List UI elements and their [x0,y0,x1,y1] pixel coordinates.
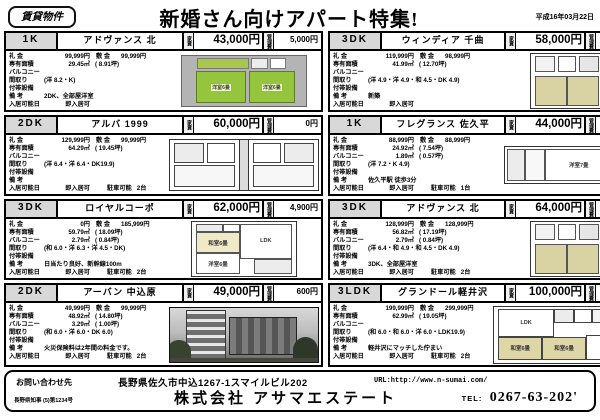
balcony-value [44,69,90,77]
room-area [253,165,314,187]
balcony-label: バルコニー [9,69,44,77]
layout-value: (洋 8.2・K) [44,77,75,85]
room-type-badge: 2DK [6,117,58,133]
fee-label: 管理費 [264,117,274,133]
listing-details: 礼 金49,999円敷 金99,999円 専有面積48.92㎡( 14.80坪)… [9,305,169,364]
key-money-value: 99,999円 [44,53,90,61]
listing-card: 3DK ウィンディア 千曲 家賃 58,000円 管理費 0円 礼 金119,9… [328,31,600,112]
fee-label: 管理費 [586,201,596,217]
area-value: 29.45㎡ [44,61,90,69]
property-name: アルバ 1999 [58,117,184,133]
room-type-badge: 3DK [6,201,58,217]
management-fee: 4,900円 [274,201,321,217]
room-type-badge: 1K [6,33,58,49]
deposit-value: 99,999円 [121,53,146,61]
property-name: グランドール軽井沢 [382,285,506,301]
building-facade [186,310,226,359]
bath-area [579,224,599,240]
flyer-date: 平成16年03月22日 [502,12,594,22]
listing-details: 礼 金119,999円敷 金98,999円 専有面積41.99㎡( 12.70坪… [333,53,493,109]
building-photo [169,307,319,363]
property-name: アーバン 中込原 [58,285,184,301]
room-area: 洋室6畳 [196,253,240,274]
toilet-area [574,309,592,322]
rental-badge: 賃貸物件 [8,6,76,28]
ldk-area: LDK [240,224,292,259]
room-area: 洋室6畳 [249,71,295,103]
tatami-room-area [535,76,567,106]
property-name: ロイヤルコーポ [58,201,184,217]
bath-area [579,56,599,72]
license-number: 長野県知事 (5)第1234号 [14,396,73,404]
listing-details: 礼 金99,999円敷 金99,999円 専有面積29.45㎡( 8.91坪) … [9,53,169,109]
listing-details: 礼 金88,999円敷 金88,999円 専有面積24.92㎡( 7.54坪) … [333,137,493,193]
inquiry-label: お問い合わせ先 [16,377,72,388]
room-area: 洋室6畳 [586,335,600,360]
tatami-room-area: 和室6畳 [196,232,240,253]
bath-area [251,58,267,69]
bath-area [554,309,574,322]
room-area [207,143,235,163]
bath-area [223,224,240,232]
area-tsubo: ( 8.91坪) [95,61,119,69]
hall-area [558,56,575,72]
room-type-badge: 3DK [330,33,382,49]
room-area [253,143,281,163]
toilet-area [270,58,286,69]
ldk-area: LDK [498,309,553,337]
hall-area [558,224,575,240]
fee-label: 管理費 [586,285,596,301]
kitchen-area [535,224,555,240]
rent-label: 家賃 [184,117,194,133]
listing-details: 礼 金128,999円敷 金128,999円 専有面積56.82㎡( 17.19… [333,221,493,277]
kitchen-area [197,58,249,69]
company-name: 株式会社 アサマエステート [174,387,397,408]
rent-amount: 49,000円 [194,285,264,301]
tatami-room-area [567,244,599,274]
property-name: フレグランス 佐久平 [382,117,506,133]
website-url: URL:http://www.n-sumai.com/ [374,377,487,385]
tel-value: 0267-63-202' [490,390,578,405]
rent-label: 家賃 [506,33,516,49]
management-fee: 12,000円 [596,285,600,301]
floorplan-image: LDK 和室6畳 和室6畳 洋室6畳 [493,306,600,364]
room-area: 洋室6畳 [196,71,247,103]
fee-label: 管理費 [264,285,274,301]
rent-amount: 64,000円 [516,201,586,217]
floorplan-image: 洋室7畳 [504,146,600,184]
flyer-header: 賃貸物件 新婚さん向けアパート特集! 平成16年03月22日 [4,4,596,30]
room-type-badge: 1K [330,117,382,133]
rent-amount: 100,000円 [516,285,586,301]
kitchen-area [507,149,524,181]
fee-label: 管理費 [264,33,274,49]
listing-card: 3DK ロイヤルコーポ 家賃 62,000円 管理費 4,900円 礼 金0円敷… [4,199,323,280]
listing-card: 1K アドヴァンス 北 家賃 43,000円 管理費 5,000円 礼 金99,… [4,31,323,112]
flyer-title: 新婚さん向けアパート特集! [76,3,502,32]
movein-label: 入居可能日 [9,101,44,109]
rent-amount: 62,000円 [194,201,264,217]
tatami-room-area: 和室6畳 [498,337,542,359]
phone-number: TEL: 0267-63-202' [462,388,578,406]
listing-details: 礼 金0円敷 金185,999円 専有面積59.79㎡( 18.09坪) バルコ… [9,221,169,277]
management-fee: 5,000円 [596,201,600,217]
rent-label: 家賃 [184,33,194,49]
area-label: 専有面積 [9,61,44,69]
movein-value: 即入居可 [44,101,90,109]
rent-label: 家賃 [506,285,516,301]
listing-details: 礼 金199,999円敷 金299,999円 専有面積62.99㎡( 19.05… [333,305,493,364]
management-fee: 5,200円 [596,117,600,133]
floorplan-image [169,139,319,191]
contact-box: お問い合わせ先 長野県佐久市中込1267-1スマイルビル202 URL:http… [4,370,596,412]
rental-flyer: 賃貸物件 新婚さん向けアパート特集! 平成16年03月22日 1K アドヴァンス… [0,0,600,420]
management-fee: 5,000円 [274,33,321,49]
rent-amount: 60,000円 [194,117,264,133]
fee-label: 管理費 [586,33,596,49]
key-money-label: 礼 金 [9,53,44,61]
listing-card: 3DK アドヴァンス 北 家賃 64,000円 管理費 5,000円 礼 金12… [328,199,600,280]
floorplan-image [530,221,600,277]
fee-label: 管理費 [586,117,596,133]
bath-area [525,149,545,181]
deposit-label: 敷 金 [96,53,121,61]
stairwell-area [239,140,249,190]
listing-card: 1K フレグランス 佐久平 家賃 44,000円 管理費 5,200円 礼 金8… [328,115,600,196]
listing-details: 礼 金129,999円敷 金99,999円 専有面積64.29㎡( 19.45坪… [9,137,169,193]
fee-label: 管理費 [264,201,274,217]
rent-label: 家賃 [506,201,516,217]
floorplan-image: 洋室6畳 洋室6畳 [181,55,307,107]
rent-label: 家賃 [184,285,194,301]
floorplan-image: 和室6畳 LDK 洋室6畳 [191,221,297,277]
listing-card: 2DK アーバン 中込原 家賃 49,000円 管理費 600円 礼 金49,9… [4,283,323,367]
floorplan-image [530,53,600,109]
rent-amount: 43,000円 [194,33,264,49]
property-name: アドヴァンス 北 [382,201,506,217]
room-type-badge: 3DK [330,201,382,217]
tatami-room-area: 和室6畳 [542,337,586,359]
room-area [174,165,235,187]
room-type-badge: 3LDK [330,285,382,301]
property-name: アドヴァンス 北 [58,33,184,49]
listings-grid: 1K アドヴァンス 北 家賃 43,000円 管理費 5,000円 礼 金99,… [4,31,596,367]
ground [170,358,318,362]
rent-amount: 44,000円 [516,117,586,133]
tel-label: TEL: [462,394,483,403]
rent-label: 家賃 [184,201,194,217]
room-type-badge: 2DK [6,285,58,301]
room-area [284,143,314,163]
kitchen-area [535,56,555,72]
entrance-area [196,224,223,232]
management-fee: 0円 [274,117,321,133]
listing-card: 3LDK グランドール軽井沢 家賃 100,000円 管理費 12,000円 礼… [328,283,600,367]
building-wing [229,317,297,355]
entrance-area [592,309,600,322]
tatami-room-area [567,76,599,106]
room-area: 洋室7畳 [545,149,600,181]
property-name: ウィンディア 千曲 [382,33,506,49]
tatami-room-area [535,244,567,274]
room-area [174,143,204,163]
rent-amount: 58,000円 [516,33,586,49]
rent-label: 家賃 [506,117,516,133]
management-fee: 600円 [274,285,321,301]
toilet-area [254,259,291,274]
listing-card: 2DK アルバ 1999 家賃 60,000円 管理費 0円 礼 金129,99… [4,115,323,196]
management-fee: 0円 [596,33,600,49]
